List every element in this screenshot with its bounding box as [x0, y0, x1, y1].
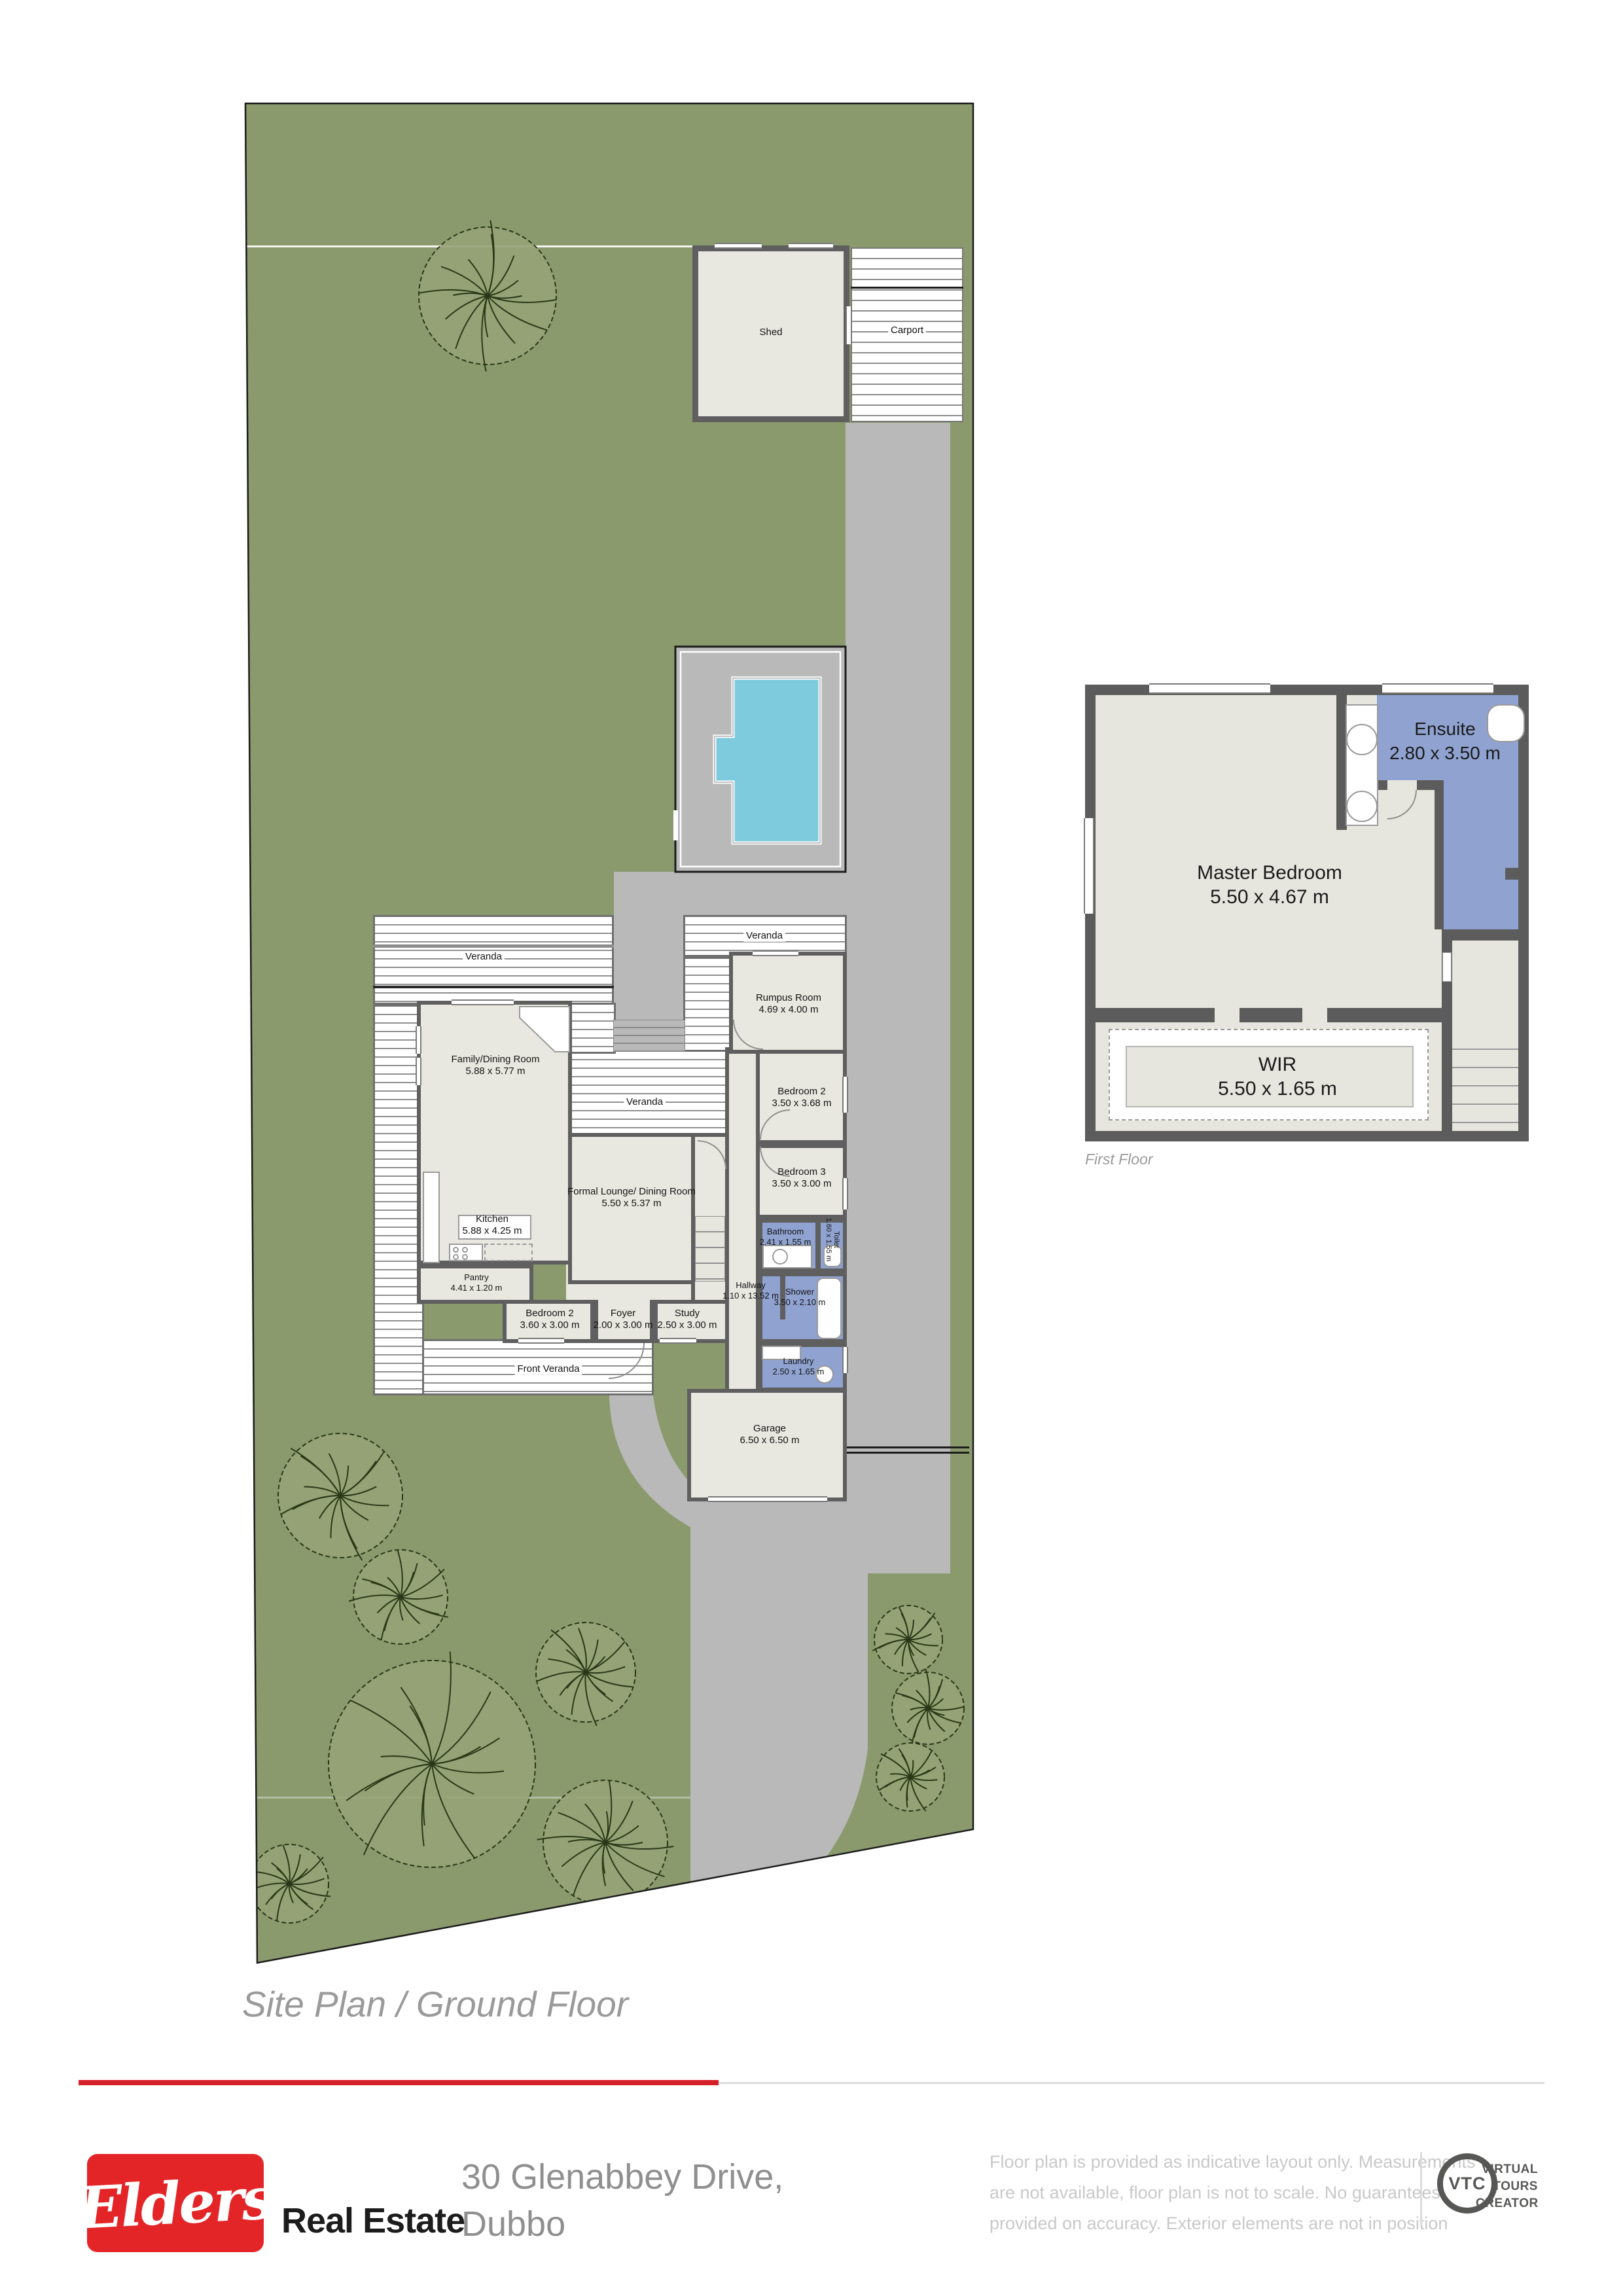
elders-logo: Elders — [87, 2154, 264, 2252]
wir-door-gap — [1302, 1008, 1327, 1022]
veranda-beam — [373, 944, 614, 948]
window — [452, 999, 514, 1005]
ensuite-sink — [1346, 791, 1378, 822]
pool-enclosure — [673, 647, 846, 872]
window — [416, 1026, 421, 1054]
ff-window — [1382, 683, 1493, 694]
footer-line — [719, 2082, 1544, 2084]
veranda-strip-rumpus — [683, 957, 732, 1054]
stove-burner — [462, 1254, 468, 1260]
carport-label: Carport — [888, 325, 926, 336]
bedroom3-label: Bedroom 33.50 x 3.00 m — [772, 1166, 832, 1190]
window — [660, 1338, 696, 1344]
family-label: Family/Dining Room5.88 x 5.77 m — [451, 1054, 539, 1077]
ff-window — [1149, 683, 1270, 694]
driveway-gate — [846, 1446, 969, 1448]
veranda-middle — [568, 1050, 732, 1137]
veranda-edge — [373, 986, 614, 988]
toilet-label: Toilet1.60 x 1.55 m — [825, 1218, 840, 1262]
formal-lounge-label: Formal Lounge/ Dining Room5.50 x 5.37 m — [567, 1186, 696, 1210]
bathroom-label: Bathroom2.41 x 1.55 m — [760, 1227, 811, 1247]
ff-stair-door-gap — [1442, 952, 1452, 982]
address-line2: Dubbo — [461, 2200, 783, 2248]
ff-wall — [1505, 868, 1529, 880]
property-address: 30 Glenabbey Drive, Dubbo — [461, 2153, 783, 2248]
ff-stairs — [1452, 1031, 1518, 1131]
shed-window — [789, 243, 833, 249]
site-plan-caption: Site Plan / Ground Floor — [242, 1983, 628, 2025]
kitchen-counter — [423, 1172, 440, 1263]
ensuite-area-lower — [1444, 780, 1518, 929]
stove-burner — [453, 1254, 459, 1260]
laundry-label: Laundry2.50 x 1.65 m — [773, 1356, 825, 1377]
ensuite-label: Ensuite2.80 x 3.50 m — [1389, 717, 1501, 765]
bedroom2-label: Bedroom 23.50 x 3.68 m — [772, 1086, 832, 1109]
family-corner-notch — [517, 1005, 572, 1054]
study-label: Study2.50 x 3.00 m — [658, 1308, 717, 1331]
window — [416, 1058, 421, 1085]
stove-burner — [462, 1247, 468, 1253]
carport-beam — [851, 287, 963, 289]
pantry-label: Pantry4.41 x 1.20 m — [451, 1272, 503, 1293]
disclaimer-text: Floor plan is provided as indicative lay… — [990, 2147, 1475, 2239]
wir-label: WIR5.50 x 1.65 m — [1218, 1052, 1337, 1101]
veranda-label: Veranda — [624, 1096, 666, 1108]
kitchen-bench-dashed — [484, 1244, 533, 1261]
stove-burner — [453, 1247, 459, 1253]
foyer-label: Foyer2.00 x 3.00 m — [594, 1308, 653, 1331]
walkway-steps — [613, 1020, 685, 1052]
toilet-partition — [815, 1223, 821, 1268]
floor-plan-page: Shed Carport — [0, 0, 1623, 2296]
ff-wall-wir — [1096, 1008, 1471, 1022]
window — [753, 950, 798, 956]
ensuite-sink — [1346, 724, 1378, 755]
footer-accent-line — [79, 2080, 719, 2085]
bathroom-sink — [772, 1249, 788, 1265]
kitchen-label: Kitchen5.88 x 4.25 m — [463, 1213, 522, 1237]
real-estate-label: Real Estate — [281, 2200, 465, 2241]
garage-label: Garage6.50 x 6.50 m — [740, 1423, 800, 1446]
shed-label: Shed — [759, 327, 782, 338]
window — [842, 1077, 848, 1113]
veranda-label: Veranda — [743, 930, 785, 942]
ff-wall — [1435, 780, 1444, 929]
ff-stairs-landing — [1452, 941, 1518, 1031]
veranda-label: Veranda — [463, 951, 505, 963]
ff-wall — [1442, 929, 1529, 941]
window — [842, 1178, 848, 1210]
window — [518, 1338, 564, 1344]
hallway-label: Hallway1.10 x 13.52 m — [722, 1280, 779, 1301]
ff-window — [1084, 818, 1094, 914]
pool-gate — [673, 810, 678, 840]
laundry-door-opening — [842, 1347, 848, 1373]
bedroom2-lower-label: Bedroom 23.60 x 3.00 m — [520, 1308, 580, 1331]
master-bedroom-label: Master Bedroom5.50 x 4.67 m — [1197, 861, 1342, 909]
address-line1: 30 Glenabbey Drive, — [461, 2153, 783, 2200]
shower-label: Shower3.50 x 2.10 m — [774, 1287, 826, 1308]
front-veranda-label: Front Veranda — [514, 1363, 582, 1375]
footer-divider — [1420, 2152, 1422, 2225]
wir-door-gap — [1215, 1008, 1240, 1022]
first-floor-caption: First Floor — [1085, 1151, 1153, 1168]
vtc-wordmark: VIRTUAL TOURS CREATOR — [1476, 2161, 1538, 2212]
veranda-middle-wing — [568, 1003, 616, 1054]
shed-window — [715, 243, 762, 249]
garage-door-opening — [708, 1496, 827, 1502]
rumpus-label: Rumpus Room4.69 x 4.00 m — [756, 992, 821, 1016]
hallway-corridor — [725, 1047, 760, 1394]
ground-stairs — [695, 1216, 725, 1282]
elders-wordmark: Elders — [77, 2164, 274, 2242]
